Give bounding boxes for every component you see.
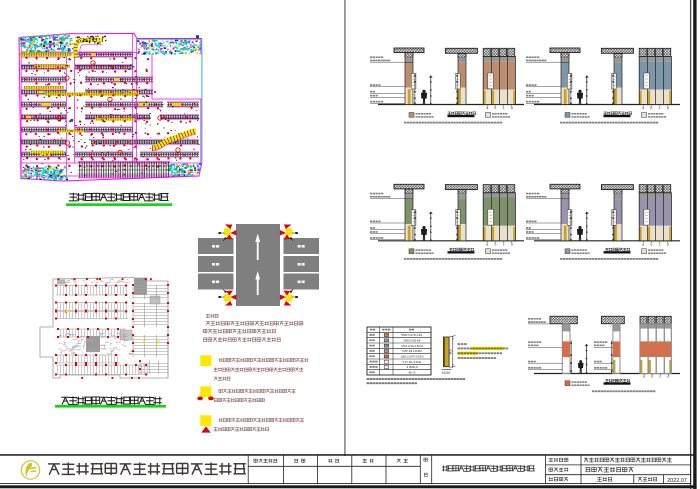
svg-text:b: b	[495, 242, 497, 246]
svg-text:b: b	[651, 242, 653, 246]
svg-text:0702 9.4G 4.5/2.8: 0702 9.4G 4.5/2.8	[401, 344, 423, 348]
svg-text:a: a	[486, 242, 488, 246]
svg-text:±0.00: ±0.00	[442, 371, 450, 375]
svg-text:0505 5.0B 6/8: 0505 5.0B 6/8	[404, 339, 421, 343]
svg-text:0.8P 4/5.2 D454: 0.8P 4/5.2 D454	[402, 349, 422, 353]
svg-text:d: d	[511, 242, 513, 246]
svg-text:d: d	[667, 242, 669, 246]
svg-text:a: a	[642, 242, 644, 246]
svg-text:800: 800	[449, 349, 453, 355]
svg-text:S 0500-N: S 0500-N	[406, 365, 417, 369]
svg-text:0502 5.6YR 4.5/1: 0502 5.6YR 4.5/1	[402, 333, 423, 337]
svg-text:9.4Y 8/1.2 0011: 9.4Y 8/1.2 0011	[403, 360, 422, 364]
svg-text:1060 2.5YR 4.5/9.6: 1060 2.5YR 4.5/9.6	[400, 355, 424, 359]
svg-text:68.75: 68.75	[409, 371, 416, 375]
svg-text:2022.07: 2022.07	[667, 478, 687, 484]
